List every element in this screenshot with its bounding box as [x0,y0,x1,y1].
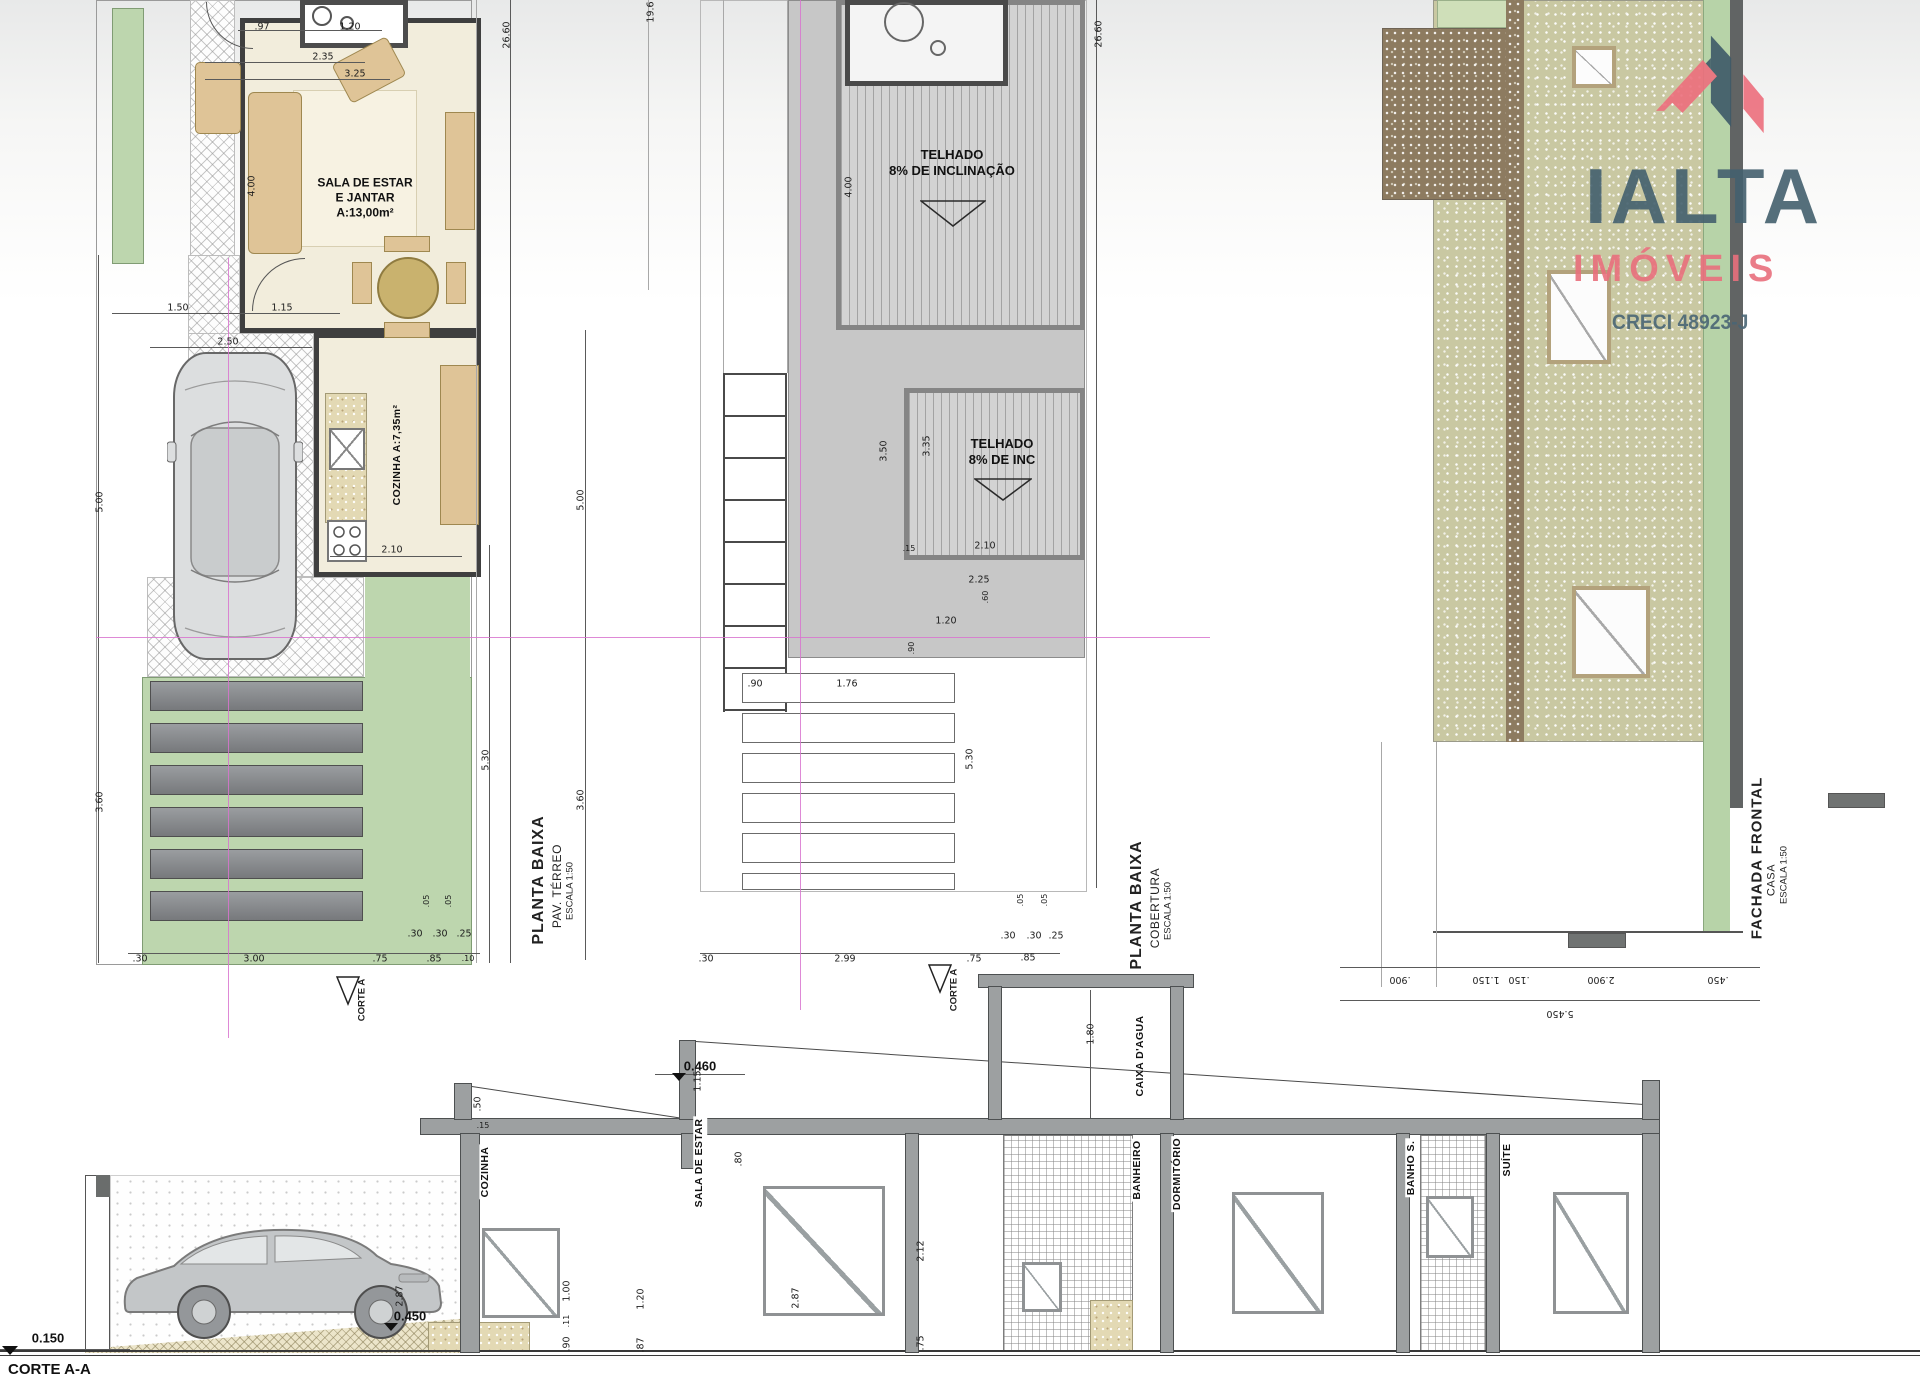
dim-label: 1.00 [562,1280,572,1301]
pergola-ladder [723,373,787,712]
armchair-left [195,62,241,134]
dim-label: 2.10 [381,545,402,555]
dim-label: .05 [1017,894,1025,907]
dim-label: 5.00 [95,491,105,512]
sala-line1: SALA DE ESTAR [317,176,412,190]
fachada-brown-column [1506,0,1524,742]
section-room-label: SALA DE ESTAR [693,1117,707,1210]
dim-label: .15 [477,1122,490,1130]
dining-chair [352,262,372,304]
terreo-subtitle: PAV. TÉRREO [551,844,563,928]
cobertura-subtitle: COBERTURA [1149,868,1161,949]
level-label: 0.450 [394,1310,427,1323]
fachada-side-step [1828,793,1885,808]
dim-label: 3.35 [922,435,932,456]
section-wall [460,1133,480,1353]
corte-title: CORTE A-A [8,1362,91,1377]
terreo-yard-upper [365,575,470,679]
driveway-strip [150,681,363,711]
water-tank-wall [988,986,1002,1120]
dim-label: 2.87 [395,1285,405,1306]
dim-label: .90 [747,679,762,689]
dim-label: .87 [636,1337,646,1352]
level-marker-icon [672,1073,686,1081]
fachada-subtitle: CASA [1767,864,1778,896]
dining-chair [446,262,466,304]
laundry-tub-icon [312,6,332,26]
ground-line [0,1350,1920,1356]
roof1-label: TELHADO8% DE INCLINAÇÃO [889,147,1015,180]
blueprint-canvas: SALA DE ESTARE JANTARA:13,00m² COZINHA A… [0,0,1920,1377]
slat-strip [742,753,955,783]
dining-chair [384,236,430,252]
dim-label: 5.30 [965,748,975,769]
dimline [1096,0,1097,888]
corte-left-wall-cap [96,1175,110,1197]
level-label: 0.150 [32,1332,65,1345]
rug [293,90,417,247]
fachada-step [1568,933,1626,948]
sala-area: A:13,00m² [336,206,393,220]
roof1-line2: 8% DE INCLINAÇÃO [889,163,1015,178]
fachada-scale: ESCALA 1:50 [1779,846,1789,904]
dim-label: 1.15 [693,1070,703,1091]
level-marker-icon [2,1346,18,1355]
terreo-scale: ESCALA 1:50 [565,862,575,920]
dimline [1340,967,1760,968]
car-side-view [118,1208,450,1348]
car-top-view [167,348,303,664]
extension-line [723,0,724,373]
dim-label: 2.10 [974,541,995,551]
dimline [98,255,99,963]
dim-label: 1.80 [1086,1023,1096,1044]
dim-label: 2.87 [791,1287,801,1308]
slat-strip [742,833,955,863]
corte-marker-label: CORTE A [949,969,959,1011]
section-room-label: COZINHA [479,1145,493,1200]
section-window-sala [763,1186,885,1316]
dimline [648,0,649,290]
dim-label: .85 [1020,953,1035,963]
driveway-strip [150,765,363,795]
cobertura-scale: ESCALA 1:50 [1163,882,1173,940]
section-wall [1486,1133,1500,1353]
dim-label: .30 [698,954,713,964]
logo-title: IALTA [1585,157,1823,235]
dimline [1340,1000,1760,1001]
logo-house-icon [1652,30,1784,150]
dim-label: .150 [1508,974,1529,984]
dim-label: .11 [563,1315,571,1328]
section-window-cozinha [482,1228,560,1318]
dim-label: .30 [1000,931,1015,941]
dim-label: 2.50 [217,337,238,347]
slat-strip [742,873,955,890]
cozinha-line1: COZINHA [391,455,403,505]
sala-line2: E JANTAR [335,191,394,205]
section-room-label: DORMITÓRIO [1171,1136,1185,1212]
extension-line [1381,742,1382,987]
dim-label: .30 [432,929,447,939]
dim-label: .85 [426,954,441,964]
dim-label: .15 [903,545,916,553]
dim-label: .900 [1389,974,1410,984]
fachada-top-strip [1437,0,1513,28]
level-line [0,1349,130,1350]
terreo-boundary-line [476,0,477,963]
room-label-sala: SALA DE ESTARE JANTARA:13,00m² [317,176,412,221]
dim-label: 1.20 [636,1288,646,1309]
dimline [700,953,1060,954]
dim-label: 2.12 [916,1240,926,1261]
logo-block: IALTA IMÓVEIS CRECI 48923-J [1640,25,1920,345]
logo-creci: CRECI 48923-J [1612,312,1748,333]
section-wall [1642,1133,1660,1353]
driveway-strip [150,723,363,753]
dim-label: 1.15 [271,303,292,313]
dim-label: .10 [462,955,475,963]
dim-label: .75 [372,954,387,964]
stove-burners-icon [329,522,365,560]
dim-label: 2.900 [1587,974,1614,984]
extension-line [787,0,788,373]
dimline [205,62,365,63]
roof2-line1: TELHADO [971,436,1034,451]
driveway-strip [150,849,363,879]
fachada-brown-panel [1382,28,1513,200]
dimline [510,0,511,963]
axis-line-vertical [800,0,801,1010]
fachada-title: FACHADA FRONTAL [1750,777,1765,939]
extension-line [1436,742,1437,987]
dim-label: 1.50 [167,303,188,313]
dim-label: .75 [916,1335,926,1350]
dim-label: 4.00 [844,176,854,197]
kitchen-counter-right [440,365,479,525]
sofa [248,92,302,254]
fachada-window-small [1572,46,1616,88]
water-tank-label: CAIXA D'AGUA [1134,1014,1148,1099]
dim-label: .90 [562,1336,572,1351]
dim-label: 26.60 [1094,20,1104,47]
dim-label: 5.450 [1546,1008,1573,1018]
dim-label: .50 [473,1096,483,1111]
dim-label: 2.35 [312,52,333,62]
dim-label: .05 [1041,894,1049,907]
section-room-label: BANHO S. [1405,1139,1419,1198]
dim-label: 3.60 [95,791,105,812]
dim-label: 4.00 [247,175,257,196]
roof-panel-2 [904,388,1085,560]
level-label: 0.460 [684,1060,717,1073]
cobertura-title: PLANTA BAIXA [1129,840,1145,969]
dim-label: .30 [132,954,147,964]
dim-label: .60 [982,591,990,604]
dim-label: 5.30 [481,749,491,770]
dim-label: 1.150 [1472,974,1499,984]
section-room-label: SUÍTE [1501,1142,1515,1179]
section-window-banho [1426,1196,1474,1258]
roof2-slope-arrow-icon [974,478,1032,502]
dim-label: 5.00 [576,489,586,510]
roof1-line1: TELHADO [921,147,984,162]
dim-label: .90 [908,642,916,655]
dimline [330,556,462,557]
level-marker-icon [384,1323,398,1331]
corte-marker-label: CORTE A [357,979,367,1021]
dim-label: 1.76 [836,679,857,689]
roof2-label: TELHADO8% DE INC [969,436,1035,469]
tv-cabinet [445,112,475,230]
dim-label: 3.60 [576,789,586,810]
dim-label: .05 [445,895,453,908]
roof1-slope-arrow-icon [920,200,986,228]
terreo-garden-strip [112,8,144,264]
corte-left-wall [85,1175,110,1352]
axis-line-vertical [228,258,229,1038]
dim-label: 2.99 [834,954,855,964]
fachada-window-low [1572,586,1650,678]
dim-label: .30 [407,929,422,939]
dim-label: .25 [1048,931,1063,941]
dim-label: 19.6 [646,1,656,22]
slat-strip [742,713,955,743]
dim-label: .97 [254,22,269,32]
dim-label: .75 [966,954,981,964]
parapet [1642,1080,1660,1120]
roof2-line2: 8% DE INC [969,452,1035,467]
dimline [585,330,586,960]
dining-table [377,257,439,319]
water-tank-top [978,974,1194,988]
driveway-strip [150,807,363,837]
water-tank-circle-icon [884,2,924,42]
dim-label: 2.25 [968,575,989,585]
dim-label: 1.20 [339,22,360,32]
cozinha-area: A:7,35m² [391,405,403,453]
axis-line-horizontal [96,637,1210,638]
dining-chair [384,322,430,338]
section-window-dormitorio [1232,1192,1324,1314]
dim-label: .30 [1026,931,1041,941]
slat-strip [742,793,955,823]
water-tank-wall [1170,986,1184,1120]
room-label-cozinha: COZINHA A:7,35m² [391,403,405,508]
sink-icon [329,428,365,470]
dim-label: .80 [734,1151,744,1166]
terreo-title: PLANTA BAIXA [531,815,547,944]
dimline [1090,990,1091,1118]
roof-slope-line [472,1086,683,1119]
section-room-label: BANHEIRO [1131,1138,1145,1201]
section-counter [1090,1300,1133,1352]
parapet [454,1083,472,1120]
dim-label: 26.60 [502,21,512,48]
dim-label: 3.50 [879,440,889,461]
section-window-banheiro [1022,1262,1062,1312]
section-window-suite [1553,1192,1629,1314]
dim-label: 1.20 [935,616,956,626]
driveway-strip [150,891,363,921]
dim-label: 3.25 [344,69,365,79]
roof-slab [420,1118,1660,1135]
dim-label: .05 [423,895,431,908]
dimline [112,313,340,314]
dim-label: 3.00 [243,954,264,964]
logo-subtitle: IMÓVEIS [1573,250,1780,288]
dim-label: .25 [456,929,471,939]
dim-label: .450 [1707,974,1728,984]
water-tank-plan [845,0,1008,86]
vent-circle-icon [930,40,946,56]
